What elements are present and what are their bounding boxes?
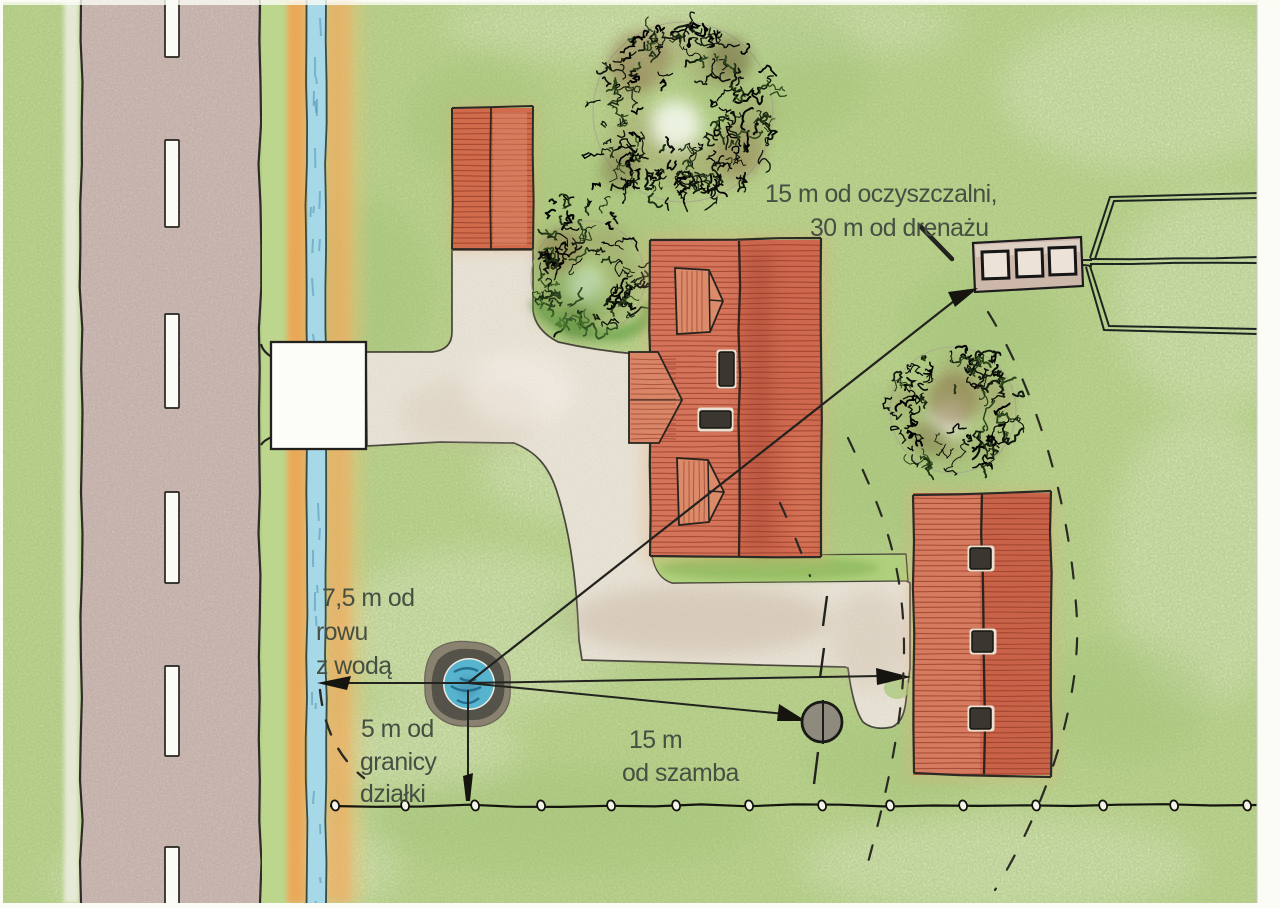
svg-text:30 m od drenażu: 30 m od drenażu [810, 215, 989, 242]
svg-text:rowu: rowu [316, 619, 368, 646]
svg-text:z wodą: z wodą [316, 653, 392, 680]
svg-text:granicy: granicy [360, 749, 438, 776]
svg-text:15 m: 15 m [629, 727, 682, 754]
svg-text:7,5 m od: 7,5 m od [322, 585, 415, 612]
svg-text:5 m od: 5 m od [361, 716, 434, 743]
svg-text:od szamba: od szamba [622, 760, 740, 787]
svg-text:15 m od oczyszczalni,: 15 m od oczyszczalni, [765, 181, 997, 208]
svg-text:działki: działki [360, 781, 425, 808]
